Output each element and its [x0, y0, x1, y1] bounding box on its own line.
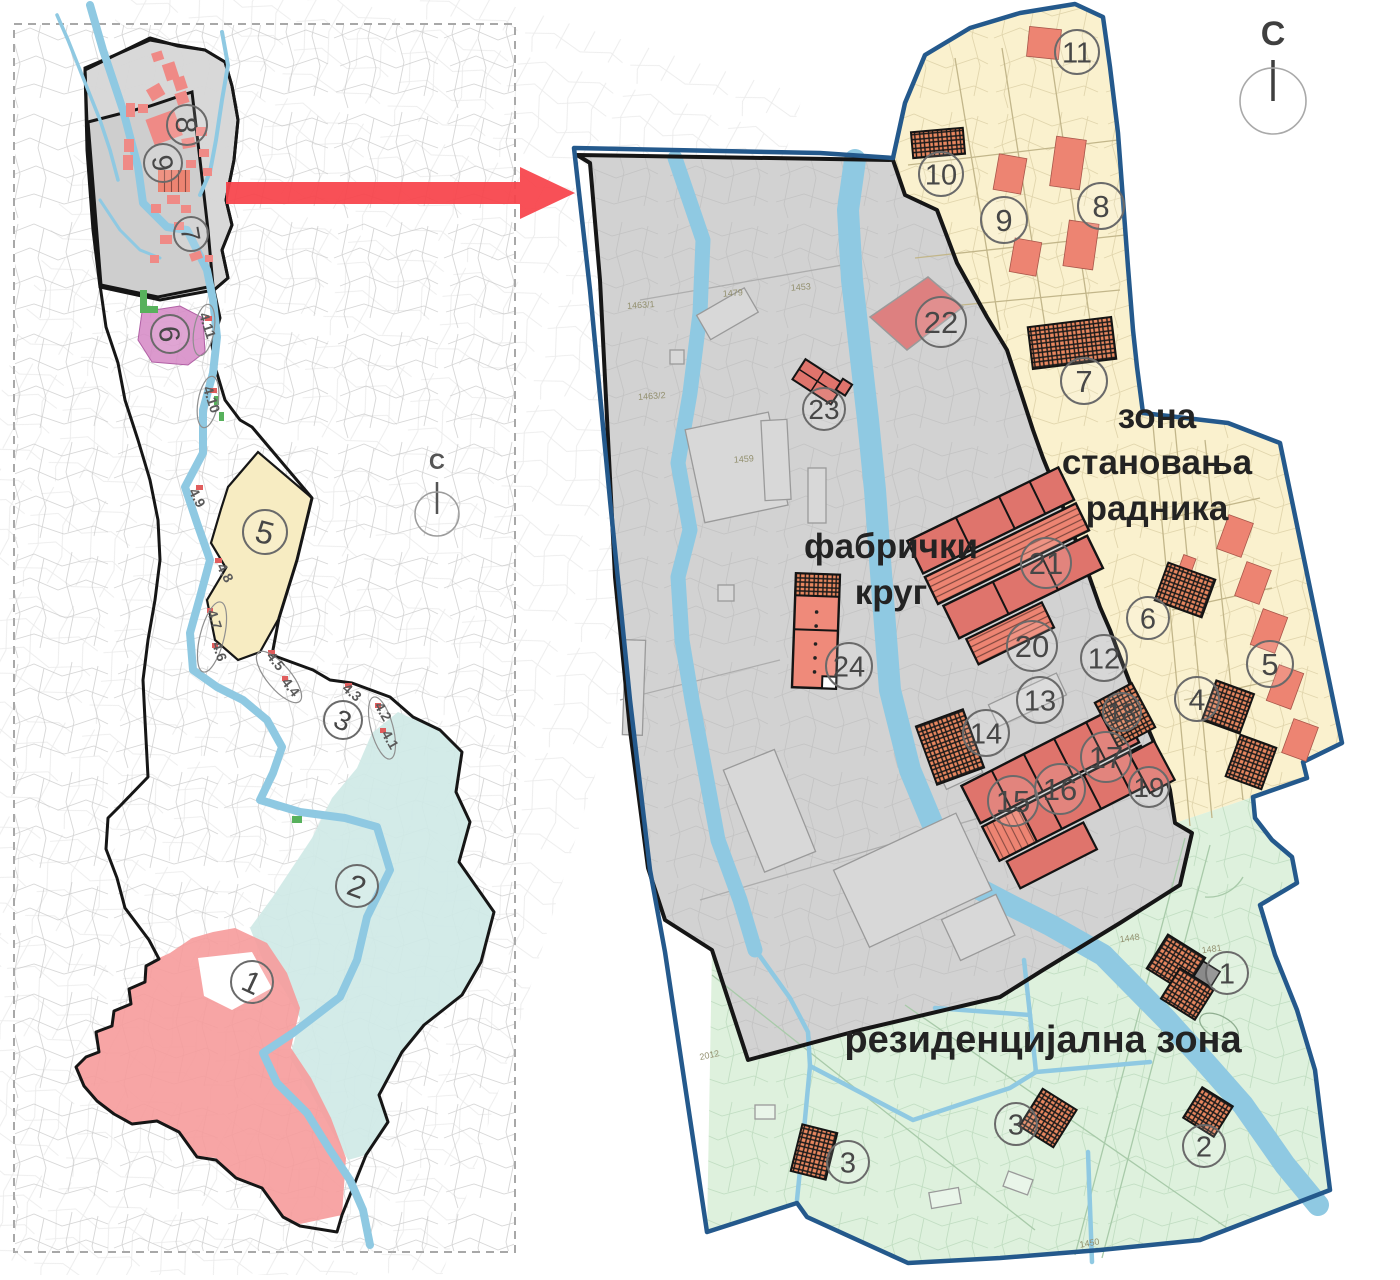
- parcel-number: 1453: [790, 281, 811, 292]
- overview-marker-2: 2: [336, 865, 378, 907]
- detail-marker-12: 12: [1081, 635, 1127, 681]
- svg-text:1: 1: [1219, 958, 1235, 990]
- svg-text:6: 6: [1140, 603, 1156, 635]
- detail-marker-13: 13: [1017, 677, 1063, 723]
- detail-marker-9: 9: [981, 197, 1027, 243]
- svg-text:18: 18: [1108, 697, 1137, 727]
- svg-text:11: 11: [1062, 37, 1092, 69]
- detail-marker-10: 10: [919, 152, 963, 196]
- detail-marker-1: 1: [1206, 952, 1248, 994]
- detail-marker-11: 11: [1055, 30, 1099, 74]
- detail-marker-23: 23: [803, 388, 845, 430]
- detail-marker-21: 21: [1021, 538, 1071, 588]
- overview-marker-8: 8: [167, 105, 207, 145]
- svg-text:14: 14: [970, 718, 1002, 750]
- detail-marker-7: 7: [1061, 358, 1107, 404]
- svg-text:19: 19: [1133, 772, 1164, 803]
- detail-marker-2: 2: [1183, 1125, 1225, 1167]
- svg-text:16: 16: [1043, 772, 1077, 807]
- parcel-number: 1463/1: [627, 299, 655, 311]
- detail-marker-5: 5: [1247, 641, 1293, 687]
- parcel-number: 1463/2: [638, 390, 666, 402]
- detail-marker-17: 17: [1081, 732, 1131, 782]
- overview-compass-letter: С: [429, 449, 445, 474]
- detail-marker-19: 19: [1129, 767, 1169, 807]
- svg-text:10: 10: [925, 159, 957, 191]
- svg-text:3: 3: [1008, 1109, 1024, 1141]
- svg-text:20: 20: [1015, 629, 1049, 664]
- svg-text:24: 24: [833, 651, 865, 683]
- overview-marker-6: 6: [151, 315, 189, 353]
- svg-text:9: 9: [995, 203, 1012, 238]
- detail-map-panel: 14791463/11463/2145914532012144814811450…: [560, 0, 1400, 1275]
- svg-text:15: 15: [996, 784, 1030, 819]
- map-figure: 89765321 4.114.104.94.84.74.64.54.44.34.…: [0, 0, 1400, 1275]
- svg-text:4: 4: [1189, 684, 1206, 717]
- detail-marker-3: 3: [827, 1141, 869, 1183]
- detail-marker-16: 16: [1035, 764, 1085, 814]
- detail-marker-24: 24: [826, 643, 872, 689]
- svg-text:23: 23: [808, 394, 839, 425]
- svg-text:22: 22: [924, 305, 958, 340]
- overview-marker-3: 3: [324, 701, 362, 739]
- svg-text:6: 6: [152, 325, 185, 344]
- detail-compass-letter: С: [1261, 15, 1286, 53]
- detail-marker-15: 15: [988, 776, 1038, 826]
- svg-text:21: 21: [1029, 546, 1063, 581]
- svg-text:17: 17: [1089, 740, 1123, 775]
- overview-marker-5: 5: [243, 510, 287, 554]
- detail-marker-18: 18: [1103, 693, 1141, 731]
- svg-text:7: 7: [1075, 364, 1092, 399]
- detail-marker-22: 22: [916, 297, 966, 347]
- svg-text:8: 8: [169, 117, 202, 134]
- parcel-number: 1479: [722, 287, 743, 298]
- detail-marker-8: 8: [1078, 183, 1124, 229]
- svg-text:3: 3: [840, 1147, 856, 1179]
- overview-marker-1: 1: [231, 961, 273, 1003]
- detail-marker-20: 20: [1007, 621, 1057, 671]
- detail-marker-4: 4: [1175, 677, 1219, 721]
- detail-marker-6: 6: [1127, 597, 1169, 639]
- detail-compass: С: [1240, 15, 1306, 134]
- svg-text:13: 13: [1024, 685, 1056, 717]
- parcel-number: 1459: [733, 453, 754, 464]
- overview-marker-7: 7: [174, 217, 208, 251]
- overview-marker-9: 9: [144, 144, 182, 182]
- svg-text:12: 12: [1088, 643, 1120, 675]
- svg-text:8: 8: [1092, 189, 1109, 224]
- svg-text:2: 2: [1196, 1131, 1212, 1163]
- detail-marker-14: 14: [963, 710, 1009, 756]
- detail-marker-3: 3: [995, 1103, 1037, 1145]
- residential-zone-label: резиденцијална зона: [844, 1019, 1242, 1061]
- svg-text:5: 5: [1261, 647, 1278, 682]
